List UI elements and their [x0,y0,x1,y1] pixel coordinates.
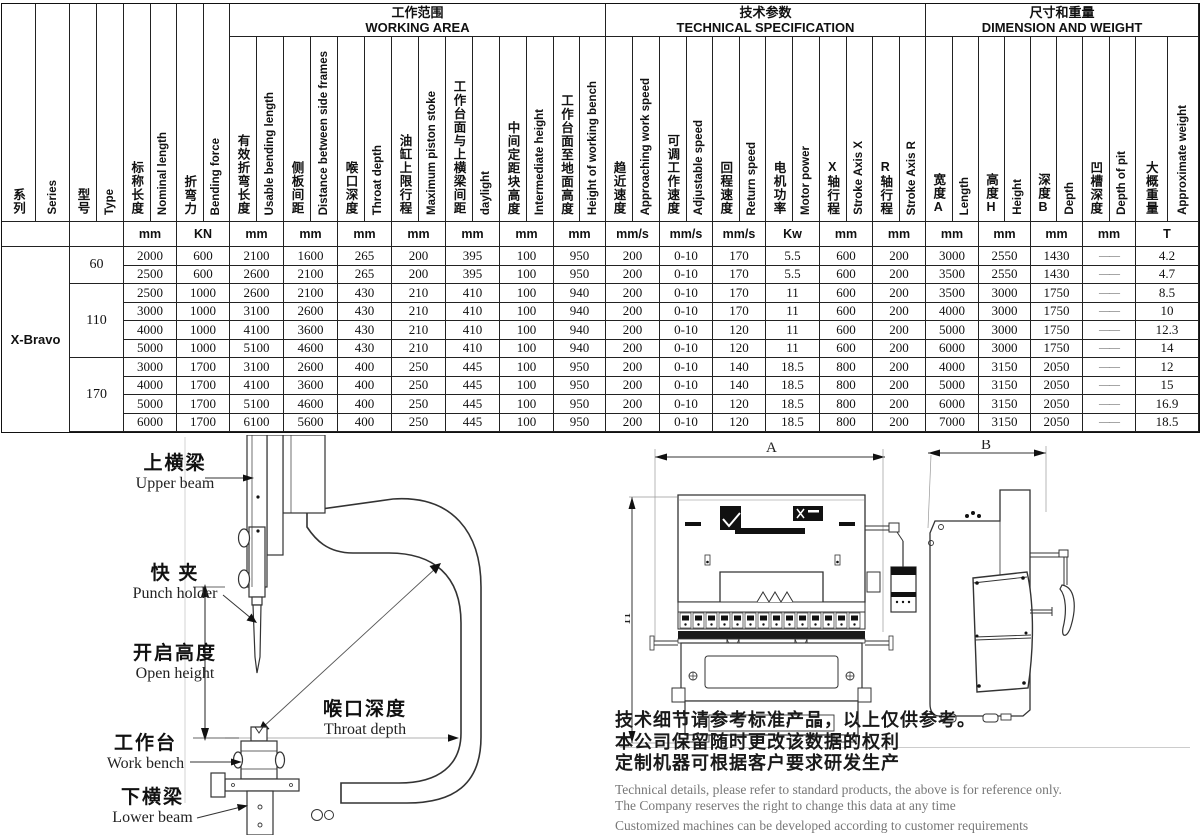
label-open-height: 开启高度 Open height [115,638,235,683]
column-label-cn: 宽度A [929,173,948,215]
cframe-diagram-svg [55,435,505,835]
data-cell: 100 [500,377,554,396]
data-cell: 250 [392,414,446,433]
data-cell: 3000 [979,321,1031,340]
column-header: 宽度ALength [926,37,979,222]
column-header-en: Distance between side frames [310,37,337,221]
data-cell: 5.5 [766,266,820,285]
column-label-en: Height [1012,179,1024,215]
label-lower-beam: 下横梁 Lower beam [95,782,210,827]
column-header: 趋近速度Approaching work speed [606,37,660,222]
data-cell: 5100 [230,340,284,359]
data-cell: 1000 [177,321,230,340]
data-cell: 600 [177,247,230,266]
disclaimer: 技术细节请参考标准产品，以上仅供参考。 本公司保留随时更改该数据的权利 定制机器… [615,710,1175,834]
column-label-cn: 喉口深度 [342,161,361,215]
data-cell: 600 [820,247,873,266]
unit-cell [2,222,70,247]
data-cell: 2550 [979,247,1031,266]
column-label-cn: X轴行程 [823,160,842,216]
data-cell: 445 [446,395,500,414]
column-label-cn: 中间定距块高度 [504,121,523,216]
type-cell: 110 [70,284,124,358]
dim-a-label: A [766,440,777,456]
data-cell: 0-10 [660,284,713,303]
data-cell: —— [1083,303,1136,322]
column-header-cn: 折弯力 [177,4,203,221]
data-cell: 2100 [230,247,284,266]
data-cell: 1000 [177,303,230,322]
column-header-en: Adjustable speed [686,37,713,221]
punch-holder-cn: 快 夹 [115,558,235,585]
column-label-en: Depth [1064,182,1076,215]
data-cell: 800 [820,395,873,414]
data-cell: 5000 [926,321,979,340]
data-cell: 1430 [1031,266,1083,285]
table-row: 50001700510046004002504451009502000-1012… [124,395,1199,414]
data-cell: 4.2 [1136,247,1199,266]
group-title: 技术参数TECHNICAL SPECIFICATION [606,4,926,37]
data-cell: 3150 [979,358,1031,377]
disclaimer-cn-line: 技术细节请参考标准产品，以上仅供参考。 [615,710,1175,732]
data-cell: 12.3 [1136,321,1199,340]
page: 系列Series型号Type标称长度Nominal length折弯力Bendi… [0,0,1200,835]
data-cell: 100 [500,358,554,377]
data-cell: 7000 [926,414,979,433]
data-cell: 600 [820,284,873,303]
data-cell: 430 [338,284,392,303]
column-header-en: Length [952,37,979,221]
column-header: 喉口深度Throat depth [338,37,392,222]
data-cell: 950 [554,395,606,414]
data-cell: 200 [606,303,660,322]
lower-beam-en: Lower beam [95,809,210,827]
dim-h-label: H [625,613,634,624]
data-cell: 3500 [926,266,979,285]
data-cell: 265 [338,247,392,266]
unit-cell: mm [820,222,873,247]
column-label-cn: 油缸上限行程 [396,134,415,215]
data-cell: 3000 [124,303,177,322]
unit-cell: mm/s [606,222,660,247]
data-cell: 100 [500,247,554,266]
data-cell: 395 [446,266,500,285]
column-group: 尺寸和重量DIMENSION AND WEIGHT宽度ALength高度HHei… [926,4,1199,222]
column-header: R轴行程Stroke Axis R [873,37,926,222]
column-header: 工作台面至地面高度Height of working bench [554,37,606,222]
work-bench-cn: 工作台 [88,728,203,755]
column-label-cn: 型号 [74,188,93,215]
unit-cell: mm/s [660,222,713,247]
column-header: 标称长度Nominal length [124,4,177,222]
data-cell: 2050 [1031,358,1083,377]
column-label-cn: 凹槽深度 [1086,161,1105,215]
table-row: 60001700610056004002504451009502000-1012… [124,414,1199,433]
unit-cell: mm [392,222,446,247]
data-cell: 100 [500,395,554,414]
column-label-en: Return speed [746,142,758,216]
unit-cell: mm [500,222,554,247]
data-cell: 800 [820,414,873,433]
unit-cell: Kw [766,222,820,247]
data-cell: 18.5 [766,395,820,414]
data-cell: 2050 [1031,377,1083,396]
data-cell: —— [1083,321,1136,340]
data-cell: 120 [713,321,766,340]
group-columns: 有效折弯长度Usable bending length侧板间距Distance … [230,37,606,222]
data-cell: 430 [338,321,392,340]
table-body: X-Bravo601101702000600210016002652003951… [2,247,1199,432]
data-cell: 200 [606,321,660,340]
data-cell: —— [1083,247,1136,266]
data-cell: 4100 [230,321,284,340]
column-header-cn: 型号 [70,4,96,221]
column-label-en: Stroke Axis X [853,141,865,215]
lower-beam-cn: 下横梁 [95,782,210,809]
data-cell: 210 [392,340,446,359]
data-cell: 395 [446,247,500,266]
label-throat-depth: 喉口深度 Throat depth [300,694,430,739]
data-cell: 3150 [979,377,1031,396]
data-cell: 2600 [230,284,284,303]
table-row: 50001000510046004302104101009402000-1012… [124,340,1199,359]
column-header: X轴行程Stroke Axis X [820,37,873,222]
column-label-en: Intermediate height [534,109,546,215]
table-row: 25001000260021004302104101009402000-1017… [124,284,1199,303]
throat-depth-en: Throat depth [300,721,430,739]
data-cell: 18.5 [766,414,820,433]
data-cell: 800 [820,358,873,377]
column-header-cn: 工作台面与上横梁间距 [446,37,472,221]
column-label-cn: 系列 [9,188,28,215]
column-header-cn: 电机功率 [766,37,792,221]
column-header-cn: 深度B [1031,37,1056,221]
data-cell: 1750 [1031,321,1083,340]
label-punch-holder: 快 夹 Punch holder [115,558,235,603]
data-cell: 2600 [284,358,338,377]
type-column: 60110170 [70,247,124,432]
column-header-en: Stroke Axis R [899,37,926,221]
column-label-cn: 回程速度 [716,161,735,215]
column-header-cn: 工作台面至地面高度 [554,37,579,221]
data-cell: 1700 [177,358,230,377]
data-cell: —— [1083,377,1136,396]
column-label-cn: 侧板间距 [288,161,307,215]
data-cell: 3000 [979,340,1031,359]
data-cell: 200 [606,414,660,433]
label-work-bench: 工作台 Work bench [88,728,203,773]
data-cell: 2500 [124,266,177,285]
column-header: 回程速度Return speed [713,37,766,222]
data-cell: 170 [713,284,766,303]
column-label-en: daylight [480,171,492,215]
unit-cell: mm [926,222,979,247]
punch-holder-en: Punch holder [115,585,235,603]
disclaimer-en-line: Technical details, please refer to stand… [615,782,1175,798]
table-row: 30001000310026004302104101009402000-1017… [124,303,1199,322]
data-cell: 1700 [177,414,230,433]
data-cell: 170 [713,247,766,266]
table-row: 2500600260021002652003951009502000-10170… [124,266,1199,285]
data-cell: 100 [500,414,554,433]
disclaimer-en-line: The Company reserves the right to change… [615,798,1175,814]
data-cell: 100 [500,284,554,303]
column-header: 油缸上限行程Maximum piston stoke [392,37,446,222]
data-cell: 200 [873,303,926,322]
data-cell: 10 [1136,303,1199,322]
column-label-cn: 工作台面至地面高度 [557,94,576,216]
spec-table: 系列Series型号Type标称长度Nominal length折弯力Bendi… [1,3,1200,433]
data-cell: 250 [392,358,446,377]
data-cell: 250 [392,377,446,396]
column-label-en: Distance between side frames [318,51,330,215]
group-title-cn: 尺寸和重量 [1029,5,1094,20]
data-cell: 11 [766,321,820,340]
column-header-en: Motor power [792,37,819,221]
data-cell: 940 [554,284,606,303]
series-cell: X-Bravo [2,247,70,432]
column-header: 侧板间距Distance between side frames [284,37,338,222]
data-cell: 200 [873,395,926,414]
data-cell: 200 [392,266,446,285]
data-cell: 950 [554,414,606,433]
data-cell: 0-10 [660,340,713,359]
data-cell: 11 [766,284,820,303]
data-cell: 0-10 [660,414,713,433]
data-cell: 11 [766,303,820,322]
data-cell: 6000 [926,340,979,359]
data-cell: 1750 [1031,284,1083,303]
disclaimer-cn-line: 本公司保留随时更改该数据的权利 [615,732,1175,754]
data-cell: 250 [392,395,446,414]
data-cell: 100 [500,303,554,322]
group-title-en: WORKING AREA [365,20,469,35]
column-label-en: Throat depth [372,145,384,215]
data-cell: 3000 [124,358,177,377]
column-header-en: Return speed [739,37,766,221]
data-cell: 430 [338,340,392,359]
type-cell: 60 [70,247,124,284]
column-header-en: Depth of pit [1109,37,1136,221]
column-header-cn: 油缸上限行程 [392,37,418,221]
data-cell: 4000 [926,358,979,377]
disclaimer-cn-line: 定制机器可根据客户要求研发生产 [615,753,1175,775]
data-cell: 3100 [230,358,284,377]
data-cell: 5000 [124,340,177,359]
open-height-en: Open height [115,665,235,683]
data-cell: 600 [820,340,873,359]
table-row: 40001000410036004302104101009402000-1012… [124,321,1199,340]
column-header-en: Maximum piston stoke [418,37,445,221]
group-title: 尺寸和重量DIMENSION AND WEIGHT [926,4,1199,37]
column-label-cn: 折弯力 [180,175,199,216]
column-label-cn: 工作台面与上横梁间距 [450,80,469,215]
data-cell: 4600 [284,340,338,359]
data-cell: 410 [446,321,500,340]
data-cell: 0-10 [660,266,713,285]
data-cell: 4.7 [1136,266,1199,285]
data-cell: 200 [392,247,446,266]
data-cell: 445 [446,358,500,377]
data-cell: 0-10 [660,395,713,414]
data-cell: 15 [1136,377,1199,396]
data-cell: 200 [873,414,926,433]
column-header: 可调工作速度Adjustable speed [660,37,713,222]
group-title-cn: 工作范围 [391,5,443,20]
data-cell: 200 [873,266,926,285]
data-cell: 400 [338,395,392,414]
column-header-cn: 系列 [2,4,35,221]
data-cell: 2600 [284,303,338,322]
data-cell: 3000 [979,284,1031,303]
data-cell: 5.5 [766,247,820,266]
data-cell: 600 [820,266,873,285]
data-cell: 3000 [979,303,1031,322]
column-header-cn: X轴行程 [820,37,846,221]
data-cell: —— [1083,358,1136,377]
work-bench-en: Work bench [88,755,203,773]
data-cell: 600 [820,303,873,322]
data-cell: 12 [1136,358,1199,377]
data-cell: 445 [446,377,500,396]
unit-cell: mm [554,222,606,247]
data-cell: 200 [606,284,660,303]
column-header: 高度HHeight [979,37,1031,222]
data-cell: 3150 [979,395,1031,414]
data-cell: 8.5 [1136,284,1199,303]
unit-cell [70,222,124,247]
column-header-en: Approximate weight [1167,37,1199,221]
data-cell: 940 [554,321,606,340]
data-cell: 2550 [979,266,1031,285]
data-cell: 410 [446,284,500,303]
column-label-en: Series [47,180,59,215]
data-cell: 14 [1136,340,1199,359]
column-header-en: Intermediate height [526,37,553,221]
data-cell: —— [1083,414,1136,433]
data-cell: 200 [873,247,926,266]
upper-beam-cn: 上横梁 [120,448,230,475]
data-cell: 5000 [124,395,177,414]
column-header: 工作台面与上横梁间距daylight [446,37,500,222]
group-title-en: DIMENSION AND WEIGHT [982,20,1143,35]
data-cell: 2050 [1031,395,1083,414]
data-cell: 940 [554,303,606,322]
data-cell: 4100 [230,377,284,396]
column-header-en: Height [1004,37,1030,221]
data-cell: 200 [606,358,660,377]
column-header-en: Throat depth [364,37,391,221]
data-cell: 800 [820,377,873,396]
unit-cell: mm [338,222,392,247]
column-header-cn: 中间定距块高度 [500,37,526,221]
column-header-en: Stroke Axis X [846,37,873,221]
data-cell: 3600 [284,377,338,396]
data-cell: 120 [713,414,766,433]
data-cell: 140 [713,377,766,396]
column-header-cn: 标称长度 [124,4,150,221]
data-cell: 140 [713,358,766,377]
data-cell: —— [1083,340,1136,359]
data-cell: —— [1083,284,1136,303]
unit-cell: KN [177,222,230,247]
unit-cell: mm [124,222,177,247]
column-label-en: Bending force [210,138,222,215]
data-cell: 170 [713,266,766,285]
data-cell: 200 [606,266,660,285]
data-grid: 2000600210016002652003951009502000-10170… [124,247,1199,432]
column-header-en: Nominal length [150,4,177,221]
group-title-cn: 技术参数 [739,5,791,20]
data-cell: 1700 [177,395,230,414]
data-cell: 3150 [979,414,1031,433]
data-cell: 445 [446,414,500,433]
data-cell: 120 [713,395,766,414]
data-cell: 950 [554,247,606,266]
unit-cell: mm [1031,222,1083,247]
column-header-en: Height of working bench [579,37,605,221]
throat-depth-cn: 喉口深度 [300,694,430,721]
group-title: 工作范围WORKING AREA [230,4,606,37]
column-header-en: Depth [1056,37,1082,221]
data-cell: 200 [606,395,660,414]
column-label-cn: R轴行程 [876,160,895,216]
column-group: 工作范围WORKING AREA有效折弯长度Usable bending len… [230,4,606,222]
data-cell: 0-10 [660,303,713,322]
column-label-en: Length [959,177,971,215]
data-cell: 400 [338,377,392,396]
data-cell: 1000 [177,284,230,303]
column-label-en: Motor power [800,146,812,215]
data-cell: 100 [500,266,554,285]
cframe-diagram [55,435,505,835]
data-cell: 400 [338,358,392,377]
unit-cell: T [1136,222,1199,247]
data-cell: 940 [554,340,606,359]
column-label-cn: 高度H [982,173,1001,215]
column-label-en: Nominal length [157,132,169,215]
column-header-cn: 回程速度 [713,37,739,221]
column-header-en: Approaching work speed [632,37,659,221]
column-label-cn: 有效折弯长度 [234,134,253,215]
column-label-en: Height of working bench [587,81,599,215]
column-header-cn: 大概重量 [1136,37,1167,221]
data-cell: 200 [873,321,926,340]
upper-beam-en: Upper beam [120,475,230,493]
data-cell: 3100 [230,303,284,322]
column-label-cn: 可调工作速度 [663,134,682,215]
data-cell: 2000 [124,247,177,266]
unit-cell: mm [446,222,500,247]
column-header: 大概重量Approximate weight [1136,37,1199,222]
table-row: 2000600210016002652003951009502000-10170… [124,247,1199,266]
column-label-en: Approaching work speed [640,78,652,215]
data-cell: 2500 [124,284,177,303]
column-header-cn: 有效折弯长度 [230,37,256,221]
data-cell: 18.5 [766,377,820,396]
data-cell: 3500 [926,284,979,303]
data-cell: 1700 [177,377,230,396]
column-label-en: Type [104,189,116,215]
column-header: 型号Type [70,4,124,222]
group-columns: 宽度ALength高度HHeight深度BDepth凹槽深度Depth of p… [926,37,1199,222]
data-cell: 6100 [230,414,284,433]
data-cell: 1750 [1031,340,1083,359]
column-header-en: Usable bending length [256,37,283,221]
data-cell: 600 [177,266,230,285]
unit-cell: mm [979,222,1031,247]
data-cell: 2600 [230,266,284,285]
